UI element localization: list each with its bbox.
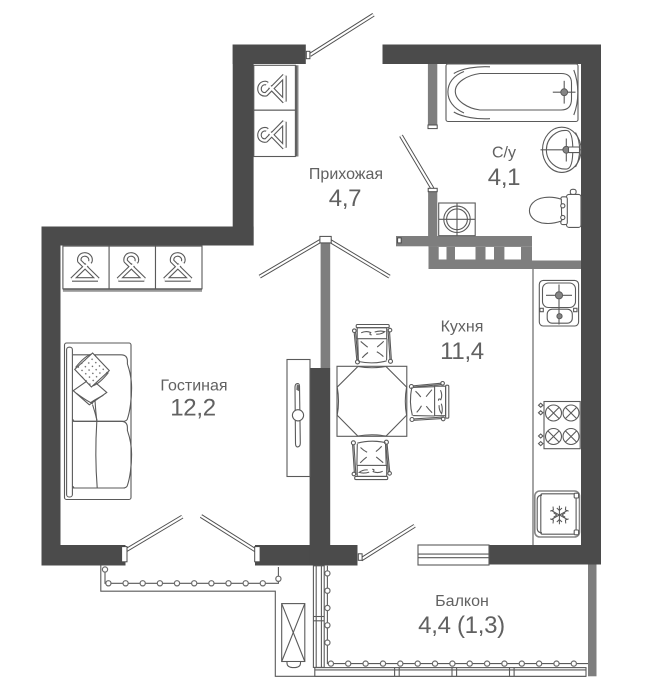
svg-text:4,7: 4,7 — [329, 185, 361, 212]
svg-text:Кухня: Кухня — [441, 319, 484, 336]
svg-text:11,4: 11,4 — [440, 338, 484, 365]
svg-text:12,2: 12,2 — [170, 395, 216, 422]
svg-text:Балкон: Балкон — [435, 593, 489, 610]
svg-text:Гостиная: Гостиная — [160, 378, 227, 395]
svg-text:4,1: 4,1 — [488, 164, 520, 191]
svg-text:Прихожая: Прихожая — [309, 166, 383, 183]
svg-text:С/у: С/у — [492, 145, 516, 162]
svg-text:4,4 (1,3): 4,4 (1,3) — [418, 612, 505, 639]
